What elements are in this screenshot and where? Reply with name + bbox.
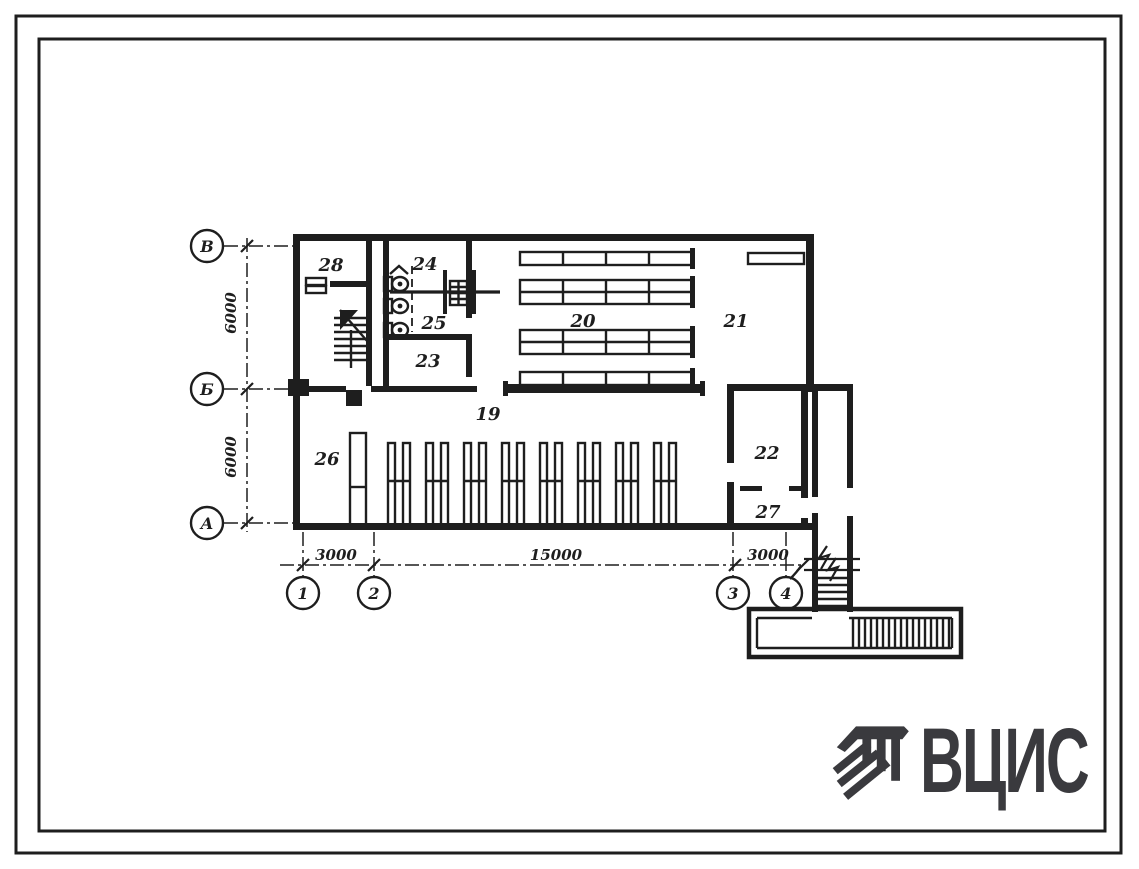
stairwell-wall-right	[366, 288, 372, 386]
room-label-23: 23	[414, 351, 440, 372]
room22-wall-right-upper	[801, 391, 808, 498]
rack-row-2	[520, 276, 695, 308]
room27-wall-right-stub	[801, 518, 808, 530]
axis-number-3: 3	[727, 584, 738, 603]
dim-bottom-middle: 15000	[530, 546, 583, 564]
wall-top	[293, 234, 814, 241]
vcis-emblem-icon	[832, 718, 912, 802]
room28-wall-right	[366, 241, 372, 288]
room-label-19: 19	[475, 404, 501, 425]
logo-text: ВЦИС	[920, 726, 1088, 798]
axis-letter-a: А	[199, 514, 213, 533]
vcis-logo: ВЦИС	[832, 718, 1139, 802]
toilet-wall-right	[466, 241, 472, 318]
room22-27-partition-left	[740, 486, 762, 491]
room22-wall-left-lower	[727, 482, 734, 530]
dim-left-upper: 6000	[222, 292, 240, 334]
rack-row-1	[520, 248, 695, 269]
rack-platform-end-left	[503, 381, 508, 396]
wall-right	[806, 234, 814, 392]
wall-axis-b-3	[727, 384, 853, 391]
axis-letter-v: В	[199, 237, 214, 256]
stair-run-hatch	[853, 617, 949, 649]
room-label-21: 21	[722, 311, 748, 332]
axis-letter-b: Б	[199, 380, 214, 399]
room-label-22: 22	[753, 443, 779, 464]
drawing-sheet: В Б А 1 2 3 4 6000 6000 3000 15000 3000 …	[0, 0, 1139, 869]
wall-pier	[346, 390, 362, 406]
landing-inner	[757, 618, 952, 648]
axis-number-4: 4	[780, 584, 791, 603]
racks-hall19	[350, 433, 676, 525]
wall-bottom	[293, 523, 814, 530]
room-label-26: 26	[313, 449, 340, 470]
corridor-wall-left-lower	[812, 513, 818, 612]
break-bolt-1	[819, 546, 829, 569]
corridor-wall-left-upper	[812, 391, 818, 497]
axis-number-2: 2	[367, 584, 379, 603]
door-symbol	[306, 278, 326, 293]
room-label-25: 25	[420, 313, 446, 334]
stair-treads	[818, 578, 847, 606]
rack-row-3	[520, 326, 695, 358]
rack-room21	[748, 253, 804, 264]
rack-row-4	[520, 368, 695, 389]
dim-bottom-right: 3000	[747, 546, 789, 564]
room-label-27: 27	[754, 502, 781, 523]
wall-junction-block	[288, 379, 309, 396]
dim-bottom-left: 3000	[315, 546, 357, 564]
room22-wall-left-upper	[727, 391, 734, 463]
washstand-unit	[390, 270, 500, 314]
landing-outline	[749, 609, 961, 657]
dim-left-lower: 6000	[222, 436, 240, 478]
corridor-wall-right-upper	[847, 391, 853, 488]
room-label-28: 28	[317, 255, 344, 276]
racks-room20	[520, 248, 804, 389]
valve-symbol	[390, 266, 408, 274]
rack-platform-end-right	[700, 381, 705, 396]
room-label-20: 20	[569, 311, 596, 332]
axis-number-1: 1	[297, 584, 308, 603]
room28-wall-bottom	[330, 281, 366, 287]
room-label-24: 24	[411, 254, 437, 275]
rack-tall	[350, 433, 366, 525]
corridor-wall-right-lower	[847, 516, 853, 612]
wall-axis-b-2	[371, 386, 477, 392]
room23-wall-end	[466, 334, 472, 377]
internal-stair	[334, 310, 368, 368]
